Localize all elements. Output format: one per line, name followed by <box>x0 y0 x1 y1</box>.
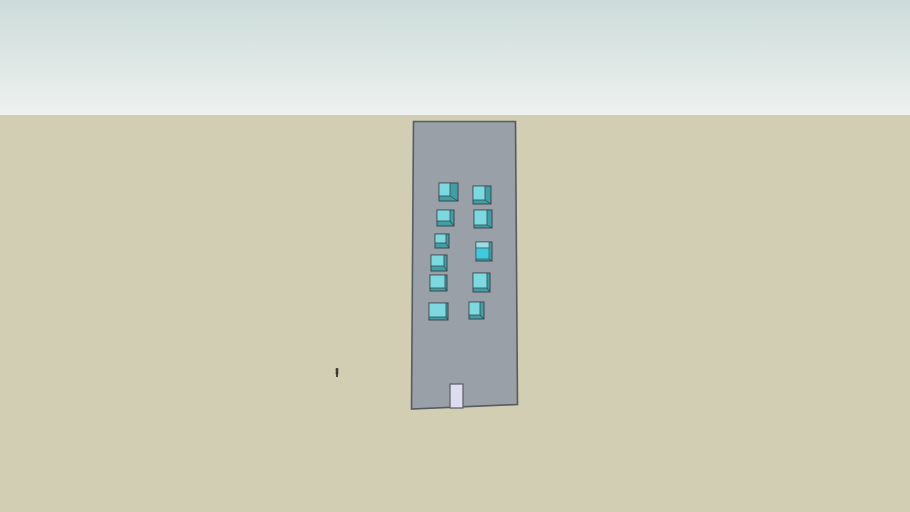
scale-figure-head <box>336 368 339 371</box>
scale-figure-torso <box>336 371 339 375</box>
building-window <box>439 183 458 201</box>
building-window <box>430 275 447 291</box>
window-glass-face <box>473 186 485 200</box>
window-upper-pane <box>476 242 489 248</box>
window-glass-face <box>469 302 480 315</box>
window-glass-face <box>476 248 489 259</box>
building-window <box>469 302 484 319</box>
building-window <box>473 186 491 204</box>
sky <box>0 0 910 115</box>
building-window <box>431 255 447 271</box>
window-glass-face <box>474 210 487 225</box>
scene-canvas[interactable] <box>0 0 910 512</box>
window-glass-face <box>439 183 450 196</box>
scale-figure-legs <box>336 374 338 377</box>
window-glass-face <box>473 273 487 288</box>
window-glass-face <box>430 275 445 288</box>
building-window <box>437 210 454 226</box>
window-glass-face <box>435 234 446 243</box>
building-window <box>476 242 492 261</box>
window-glass-face <box>431 255 444 266</box>
window-glass-face <box>437 210 450 221</box>
model-viewport[interactable] <box>0 0 910 512</box>
building-facade <box>412 122 518 410</box>
building-window <box>473 273 490 292</box>
building-window <box>474 210 492 228</box>
building-window <box>435 234 449 248</box>
window-glass-face <box>429 303 446 317</box>
building-window <box>429 303 448 320</box>
entrance-door <box>450 384 463 408</box>
